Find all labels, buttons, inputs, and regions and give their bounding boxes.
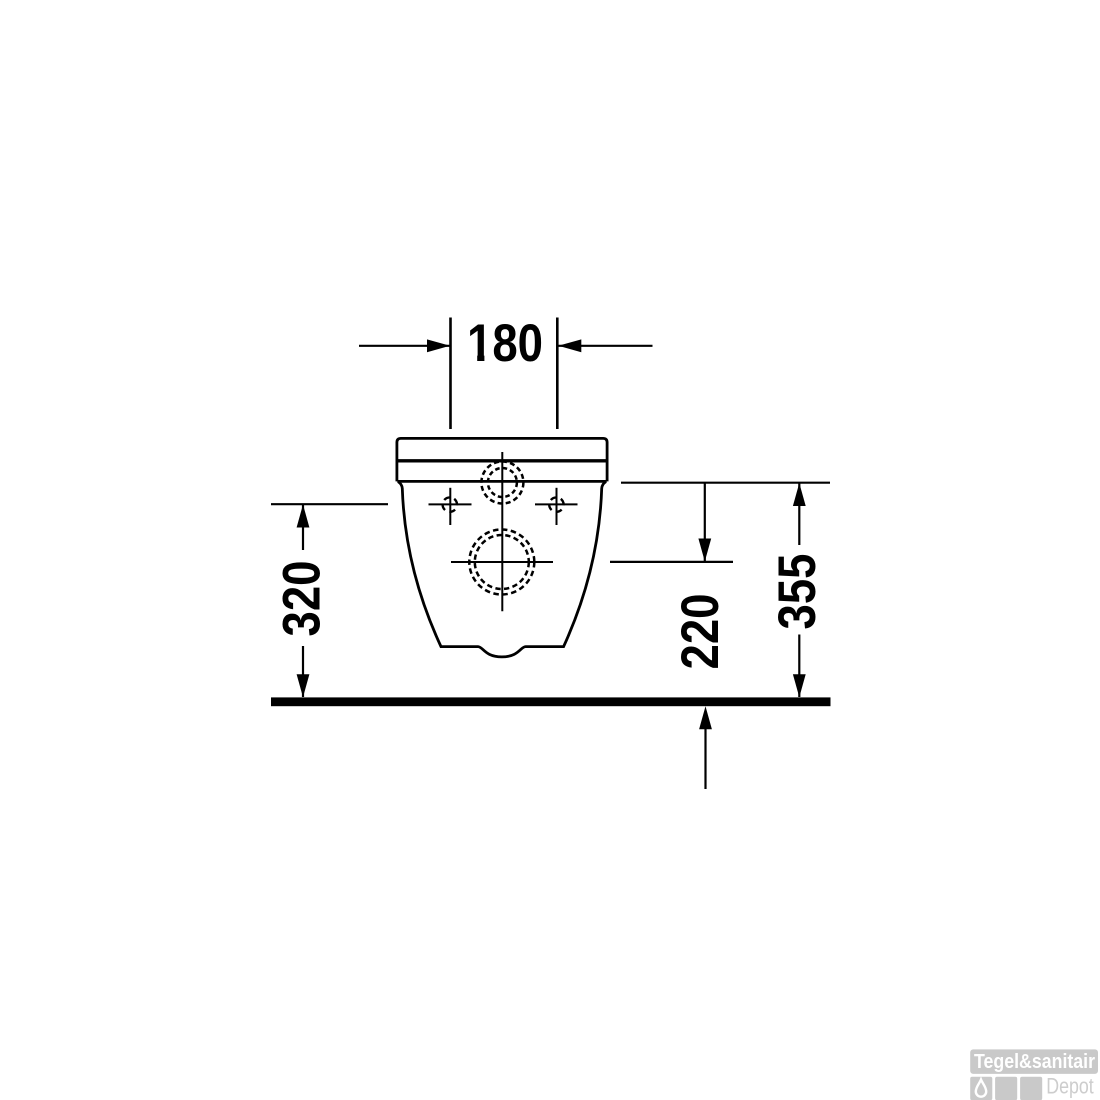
svg-text:180: 180 — [467, 314, 543, 373]
svg-text:Depot: Depot — [1046, 1074, 1094, 1099]
svg-text:220: 220 — [671, 594, 730, 670]
svg-text:320: 320 — [273, 561, 332, 637]
svg-text:355: 355 — [768, 554, 827, 630]
svg-text:Tegel&sanitair: Tegel&sanitair — [974, 1050, 1095, 1073]
